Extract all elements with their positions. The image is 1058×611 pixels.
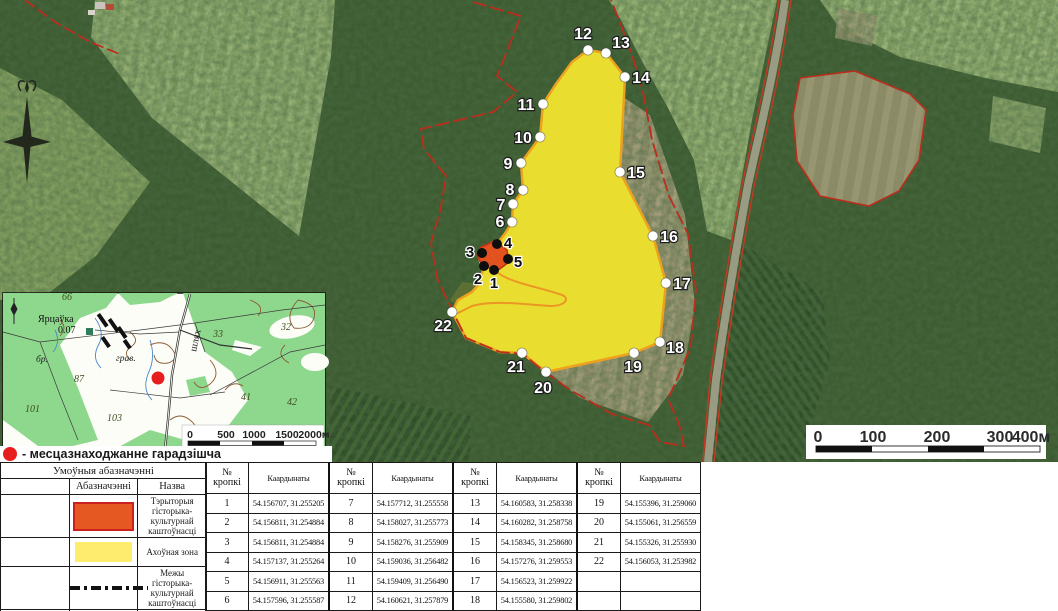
cell-coordinates: 54.158027, 31.255773 — [373, 513, 454, 533]
cell-coordinates: 54.157276, 31.259553 — [497, 552, 578, 572]
point-label: 17 — [673, 276, 691, 293]
scalebar-label: 200 — [924, 429, 951, 446]
point-label: 2 — [474, 271, 482, 288]
table-row: 654.157596, 31.2555871254.160621, 31.257… — [206, 591, 701, 611]
point-label: 11 — [518, 97, 535, 114]
legend-spacer-cell — [1, 479, 70, 495]
zone-swatch — [75, 542, 132, 562]
cell-coordinates: 54.156707, 31.255205 — [249, 494, 330, 514]
inset-label: 32 — [280, 322, 291, 333]
cell-coordinates: 54.160282, 31.258758 — [497, 513, 578, 533]
cell-point-number: 15 — [453, 533, 497, 553]
header-point-number: № кропкі — [329, 463, 373, 494]
inset-scalebar-label: 2000м — [298, 429, 329, 441]
point-label: 5 — [514, 254, 522, 271]
inset-label: бр. — [36, 354, 48, 365]
point-label: 21 — [507, 359, 525, 376]
map-point-1: 1 — [489, 265, 499, 292]
point-label: 13 — [612, 35, 630, 52]
cell-coordinates: 54.158345, 31.258680 — [497, 533, 578, 553]
cell-coordinates: 54.158276, 31.255909 — [373, 533, 454, 553]
site-marker-legend: - месцазнаходжанне гарадзішча — [0, 446, 332, 462]
cell-point-number: 12 — [329, 591, 373, 611]
cell-coordinates: 54.155396, 31.259060 — [621, 494, 701, 514]
cell-point-number: 4 — [206, 552, 249, 572]
cell-coordinates — [621, 591, 701, 611]
inset-label: 103 — [107, 413, 122, 424]
header-point-number: № кропкі — [453, 463, 497, 494]
point-label: 15 — [627, 165, 645, 182]
inset-scalebar-label: 0 — [187, 429, 193, 441]
point-label: 3 — [466, 244, 474, 261]
site-location-dot — [152, 372, 165, 385]
point-label: 12 — [574, 26, 592, 43]
inset-scalebar-label: 1500 — [275, 429, 299, 441]
table-row: 554.156911, 31.2555631154.159409, 31.256… — [206, 572, 701, 592]
point-label: 4 — [504, 235, 513, 252]
map-scalebar: 0100200300400м — [806, 425, 1050, 459]
scalebar-label: 0 — [814, 429, 823, 446]
cell-point-number — [577, 572, 621, 592]
point-label: 14 — [632, 70, 650, 87]
inset-label: Ярцаўка — [38, 314, 74, 325]
coordinates-table-wrap: № кропкіКаардынаты№ кропкіКаардынаты№ кр… — [205, 462, 691, 611]
cell-coordinates: 54.160583, 31.258338 — [497, 494, 578, 514]
cell-coordinates: 54.155061, 31.256559 — [621, 513, 701, 533]
legend-row-name: Тэрыторыя гісторыка-культурнай каштоўнас… — [138, 495, 207, 538]
cell-coordinates: 54.157137, 31.255264 — [249, 552, 330, 572]
cell-point-number: 11 — [329, 572, 373, 592]
cell-coordinates: 54.156053, 31.253982 — [621, 552, 701, 572]
cell-coordinates — [621, 572, 701, 592]
inset-scalebar-label: 1000 — [242, 429, 266, 441]
header-point-number: № кропкі — [577, 463, 621, 494]
scalebar-label: 100 — [860, 429, 887, 446]
cell-coordinates: 54.156811, 31.254884 — [249, 533, 330, 553]
cell-point-number: 19 — [577, 494, 621, 514]
header-coordinates: Каардынаты — [497, 463, 578, 494]
point-label: 10 — [514, 130, 532, 147]
header-coordinates: Каардынаты — [621, 463, 701, 494]
territory-swatch — [73, 502, 134, 531]
cell-coordinates: 54.156523, 31.259922 — [497, 572, 578, 592]
cell-point-number: 18 — [453, 591, 497, 611]
zone-swatch-cell — [69, 538, 138, 567]
cell-point-number: 17 — [453, 572, 497, 592]
cell-point-number — [577, 591, 621, 611]
inset-label: грав. — [116, 354, 136, 364]
inset-label: 42 — [287, 397, 297, 408]
cell-coordinates: 54.157596, 31.255587 — [249, 591, 330, 611]
inset-label: 87 — [74, 374, 85, 385]
legend-title: Умоўныя абазначэнні — [1, 463, 207, 479]
inset-label: 101 — [25, 404, 40, 415]
cell-coordinates: 54.159409, 31.256490 — [373, 572, 454, 592]
cell-point-number: 1 — [206, 494, 249, 514]
point-label: 7 — [497, 197, 506, 214]
cell-point-number: 8 — [329, 513, 373, 533]
cell-coordinates: 54.160621, 31.257879 — [373, 591, 454, 611]
point-label: 6 — [496, 214, 505, 231]
cell-point-number: 10 — [329, 552, 373, 572]
cell-point-number: 7 — [329, 494, 373, 514]
point-label: 9 — [504, 156, 513, 173]
header-coordinates: Каардынаты — [249, 463, 330, 494]
legend-col-name: Назва — [138, 479, 207, 495]
territory-border-cell — [69, 567, 138, 610]
table-row: 254.156811, 31.254884854.158027, 31.2557… — [206, 513, 701, 533]
header-coordinates: Каардынаты — [373, 463, 454, 494]
inset-label: 0.07 — [58, 325, 76, 336]
scalebar-label: 400м — [1012, 429, 1051, 446]
cell-coordinates: 54.155580, 31.259802 — [497, 591, 578, 611]
point-label: 20 — [534, 380, 552, 397]
scalebar-label: 300 — [987, 429, 1014, 446]
cell-point-number: 16 — [453, 552, 497, 572]
table-row: 454.157137, 31.2552641054.159036, 31.256… — [206, 552, 701, 572]
inset-label: 41 — [241, 392, 251, 403]
site-marker-label: - месцазнаходжанне гарадзішча — [22, 447, 221, 461]
inset-scalebar-label: 500 — [217, 429, 235, 441]
table-header-row: № кропкіКаардынаты№ кропкіКаардынаты№ кр… — [206, 463, 701, 494]
point-label: 16 — [660, 229, 678, 246]
cell-coordinates: 54.156911, 31.255563 — [249, 572, 330, 592]
cell-point-number: 2 — [206, 513, 249, 533]
cell-point-number: 22 — [577, 552, 621, 572]
cell-point-number: 6 — [206, 591, 249, 611]
coordinates-table: № кропкіКаардынаты№ кропкіКаардынаты№ кр… — [205, 462, 701, 611]
red-dot-icon — [3, 447, 17, 461]
territory-swatch-cell — [69, 495, 138, 538]
legend-row-name: Межы гісторыка-культурнай каштоўнасці — [138, 567, 207, 610]
cell-coordinates: 54.159036, 31.256482 — [373, 552, 454, 572]
legend-col-symbol: Абазначэнні — [69, 479, 138, 495]
cell-point-number: 21 — [577, 533, 621, 553]
table-row: 354.156811, 31.254884954.158276, 31.2559… — [206, 533, 701, 553]
legend-table: Умоўныя абазначэнні Абазначэнні Назва Тэ… — [0, 462, 207, 611]
cell-point-number: 13 — [453, 494, 497, 514]
dashdot-line-icon — [70, 586, 148, 590]
cell-point-number: 3 — [206, 533, 249, 553]
cell-point-number: 20 — [577, 513, 621, 533]
cell-coordinates: 54.156811, 31.254884 — [249, 513, 330, 533]
inset-topo-map: 66Ярцаўка0.07грав.бр.8733324142101103201… — [3, 292, 330, 449]
point-label: 18 — [666, 340, 684, 357]
satellite-map: 12345678910111213141516171819202122 0100… — [0, 0, 1058, 462]
cell-point-number: 9 — [329, 533, 373, 553]
point-label: 19 — [624, 359, 642, 376]
header-point-number: № кропкі — [206, 463, 249, 494]
point-label: 22 — [434, 318, 452, 335]
cell-point-number: 14 — [453, 513, 497, 533]
inset-label: 66 — [62, 292, 72, 303]
cell-point-number: 5 — [206, 572, 249, 592]
cell-coordinates: 54.155326, 31.255930 — [621, 533, 701, 553]
inset-label: 33 — [212, 329, 223, 340]
table-row: 154.156707, 31.255205754.157712, 31.2555… — [206, 494, 701, 514]
cell-coordinates: 54.157712, 31.255558 — [373, 494, 454, 514]
inset-scalebar: 0500100015002000м — [182, 425, 330, 448]
point-label: 8 — [506, 182, 515, 199]
map-document: 12345678910111213141516171819202122 0100… — [0, 0, 1058, 611]
point-label: 1 — [490, 275, 498, 292]
legend-row-name: Ахоўная зона — [138, 538, 207, 567]
